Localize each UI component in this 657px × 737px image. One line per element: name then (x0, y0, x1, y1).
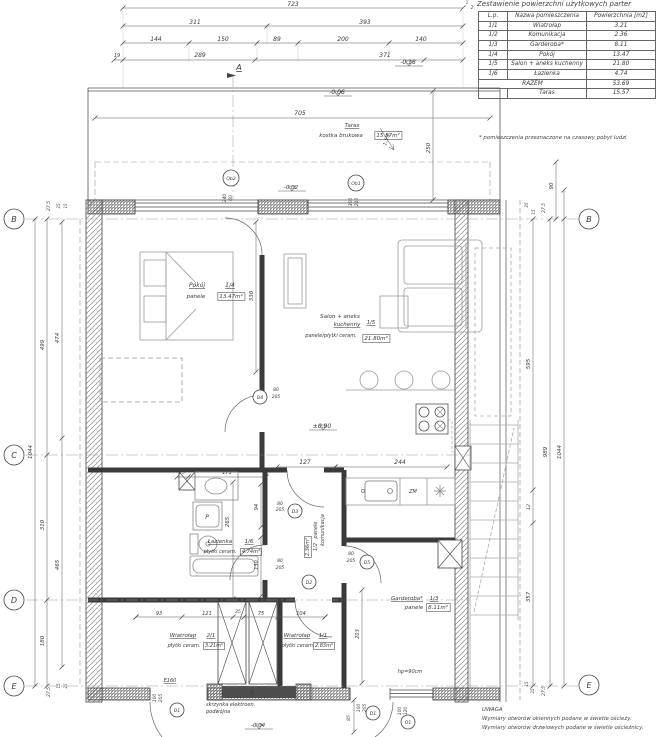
room-label: Wiatrołap (170, 633, 197, 639)
section-a-marker-icon (227, 73, 236, 78)
marker-label: C (11, 451, 17, 460)
plan-text: podwójna (205, 708, 230, 715)
plan-text: 989 (543, 446, 549, 457)
plan-text: 100 (152, 694, 158, 703)
plan-text: skrzynka elektroen. (206, 702, 255, 708)
flue-duct-dashed (448, 420, 455, 452)
plan-text: 595 (526, 358, 532, 369)
marker-label: O1 (405, 720, 412, 726)
plan-text: 2.83m² (315, 643, 333, 649)
plan-text: 2/1 (207, 633, 216, 639)
plan-text: E (250, 690, 254, 697)
notes-heading: UWAGA (482, 706, 654, 714)
plan-text: 80 (273, 387, 279, 393)
plan-text: 27.5 (46, 687, 52, 697)
plan-text: panele (313, 522, 319, 540)
plan-text: 310 (40, 519, 46, 530)
plan-text: 171 (222, 470, 232, 476)
table-footnote: * pomieszczenia przeznaczone na czasowy … (479, 135, 657, 141)
room-label: Łazienka (207, 539, 233, 545)
plan-text: 100 (356, 704, 362, 713)
plan-text: 130 (254, 560, 260, 570)
plan-text: 205 (158, 694, 164, 703)
bathtub-icon (190, 556, 258, 576)
marker-label: B (586, 215, 592, 224)
plan-text: 205 (272, 394, 281, 400)
plan-text: 330 (249, 290, 255, 301)
plan-text: 371 (379, 52, 390, 59)
plan-text: panele (186, 294, 206, 300)
plan-text: 140 (415, 36, 427, 43)
plan-text: 15 (531, 209, 536, 215)
extension-lines (123, 10, 463, 88)
plan-text: 150 (217, 36, 229, 43)
plan-text: 1/2 (313, 543, 319, 551)
plan-text: 25 (524, 202, 529, 208)
wardrobe-dashed-icon (100, 358, 182, 402)
plan-text: płytki ceram. (203, 549, 237, 555)
plan-text: 465 (55, 559, 61, 570)
plan-text: hp=90cm (398, 669, 423, 675)
marker-label: D4 (257, 395, 264, 401)
plan-text: 244 (394, 459, 406, 466)
stairs-icon (470, 248, 518, 688)
plan-text: 25 (179, 470, 185, 476)
plan-text: 80 (277, 558, 283, 564)
tv-cabinet-icon (284, 254, 306, 308)
plan-text: płytki ceram. (167, 643, 201, 649)
marker-label: D5 (364, 560, 371, 566)
plan-text: 21.80m² (364, 335, 388, 342)
plan-text: 357 (526, 591, 532, 602)
marker-label: D3 (292, 509, 299, 515)
plan-text: 90 (549, 182, 555, 189)
plan-text: kuchenny (334, 322, 362, 328)
plan-text: 2 (471, 5, 474, 10)
plan-text: 289 (194, 52, 206, 59)
neighbor-wall-lines (500, 200, 520, 702)
plan-text: 8.11m² (428, 604, 449, 611)
notes-line: Wymiary otworów drzwiowych podane w świe… (482, 724, 654, 732)
plan-text: 311 (189, 19, 200, 26)
plan-text: 1/6 (245, 539, 254, 545)
plan-text: 3.21m² (205, 643, 223, 649)
plan-text: 25 (56, 203, 61, 209)
plan-text: 205 (276, 507, 285, 513)
plan-text: 27.5 (541, 203, 547, 213)
area-table: L.p. Nazwa pomieszczenia Powierzchnia [m… (478, 11, 656, 99)
plan-text: 15 (524, 681, 529, 687)
electric-box (222, 686, 296, 698)
plan-text: 205 (347, 558, 356, 564)
axis-lines (26, 75, 578, 686)
room-label: Pokój (189, 282, 205, 289)
plan-text: 25 (235, 609, 241, 615)
table-taras-row: Taras 15.57 (479, 89, 656, 99)
notes-line: Wymiary otworów okiennych podane w świet… (482, 715, 654, 723)
window-ob2-icon (135, 200, 258, 214)
room-label: Wiatrołap (284, 633, 311, 639)
plan-text: 1/5 (367, 320, 376, 326)
plan-text: komunikacja (320, 514, 326, 546)
room-label: Garderoba* (391, 596, 423, 602)
plan-text: 474 (55, 332, 61, 343)
col-name: Nazwa pomieszczenia (508, 12, 587, 22)
marker-label: D1 (370, 711, 377, 717)
table-header-row: L.p. Nazwa pomieszczenia Powierzchnia [m… (479, 12, 656, 22)
plan-text: panele/płytki ceram. (304, 333, 356, 339)
plan-text: 80 (348, 551, 354, 557)
table-row: 1/2Komunikacja2.36 (479, 31, 656, 41)
terrace-outline (88, 88, 500, 200)
plan-text: płytki ceram. (281, 643, 315, 649)
plan-text: 1/3 (430, 596, 439, 602)
plan-text: 723 (287, 1, 299, 8)
stove-icon (416, 404, 448, 434)
marker-label: D1 (174, 708, 181, 714)
col-lp: L.p. (479, 12, 508, 22)
plan-text: P (205, 514, 209, 521)
plan-text: E160 (164, 678, 177, 684)
plan-text: 19 (114, 53, 120, 59)
sink-icon (362, 481, 398, 501)
marker-label: Ob1 (351, 181, 361, 187)
plan-text: 144 (150, 36, 162, 43)
plan-text: 89 (273, 36, 281, 43)
exterior-walls (86, 200, 500, 702)
plan-text: 121 (202, 611, 212, 617)
plan-text: 1/1 (319, 633, 328, 639)
plan-text: 25 (63, 683, 68, 689)
plan-text: 705 (294, 110, 306, 117)
plan-text: 300 (348, 198, 354, 207)
plan-text: 210 (354, 198, 360, 207)
plan-text: 85 (346, 715, 352, 721)
plan-text: 200 (337, 36, 349, 43)
plan-text: 12 (526, 504, 532, 510)
notes-block: UWAGA Wymiary otworów okiennych podane w… (482, 706, 654, 732)
plan-text: 27.5 (46, 201, 52, 211)
plan-text: 250 (426, 142, 432, 153)
plan-text: 1/4 (225, 282, 235, 289)
table-row: 1/6Łazienka4.74 (479, 69, 656, 79)
table-razem-row: RAZEM 53.69 (479, 79, 656, 89)
plan-text: 75 (258, 611, 264, 617)
window-ob1-icon (308, 200, 448, 214)
plan-text: 240 (222, 194, 228, 203)
sheet-title: Zestawienie powierzchni użytkowych parte… (477, 0, 657, 8)
plan-text: panele (404, 605, 424, 611)
plan-text: kostka brukowa (319, 133, 363, 139)
plan-text: 93 (156, 611, 162, 617)
plan-text: 499 (40, 339, 46, 350)
col-area: Powierzchnia [m2] (587, 12, 656, 22)
room-label: Salon + aneks (320, 314, 360, 320)
plan-text: 100 (397, 707, 403, 716)
table-row: 1/1Wiatrołap3.21 (479, 21, 656, 31)
plan-text: 180 (40, 635, 46, 646)
plan-text: ZM (408, 489, 417, 495)
plan-text: 15 (56, 683, 61, 689)
plan-text: 94 (254, 504, 260, 510)
plan-text: 127 (299, 459, 311, 466)
plan-text: 27.5 (541, 686, 547, 696)
marker-label: Ob2 (226, 176, 236, 182)
plan-text: 1044 (557, 445, 563, 459)
room-label: Taras (345, 123, 360, 129)
plan-text: 104 (296, 611, 306, 617)
plan-text: 15 (63, 203, 68, 209)
plan-text: 203 (355, 629, 361, 639)
plan-text: 1044 (28, 445, 34, 459)
plan-text: 60 (228, 195, 234, 201)
vanity-sink-icon (195, 472, 238, 500)
plan-text: 1 (466, 0, 469, 5)
floor-plan-drawing: 7233113931441508920014019289371A705-0.06… (0, 0, 657, 737)
bar-stools-icon (346, 371, 455, 390)
plan-text: 393 (359, 19, 371, 26)
marker-label: D2 (306, 580, 313, 586)
table-row: 1/4Pokój13.47 (479, 50, 656, 60)
table-row: 1/5Salon + aneks kuchenny21.80 (479, 60, 656, 70)
plan-text: A (235, 63, 241, 72)
marker-label: D (11, 596, 17, 605)
plan-text: 13.47m² (219, 293, 243, 300)
sofa-icon (398, 240, 482, 332)
plan-text: 2.36m² (305, 538, 311, 556)
marker-label: B (11, 215, 17, 224)
plan-text: 80 (277, 501, 283, 507)
plan-text: 4.74m² (242, 549, 260, 555)
plan-text: 25 (530, 688, 535, 694)
plan-text: 205 (276, 565, 285, 571)
kitchen-counter (346, 478, 455, 505)
plan-text: 120 (403, 707, 409, 716)
floor-plan-sheet: 7233113931441508920014019289371A705-0.06… (0, 0, 657, 737)
plan-text: 265 (225, 516, 231, 527)
table-row: 1/3Garderoba*8.11 (479, 40, 656, 50)
freezer-symbol-icon (434, 485, 446, 497)
